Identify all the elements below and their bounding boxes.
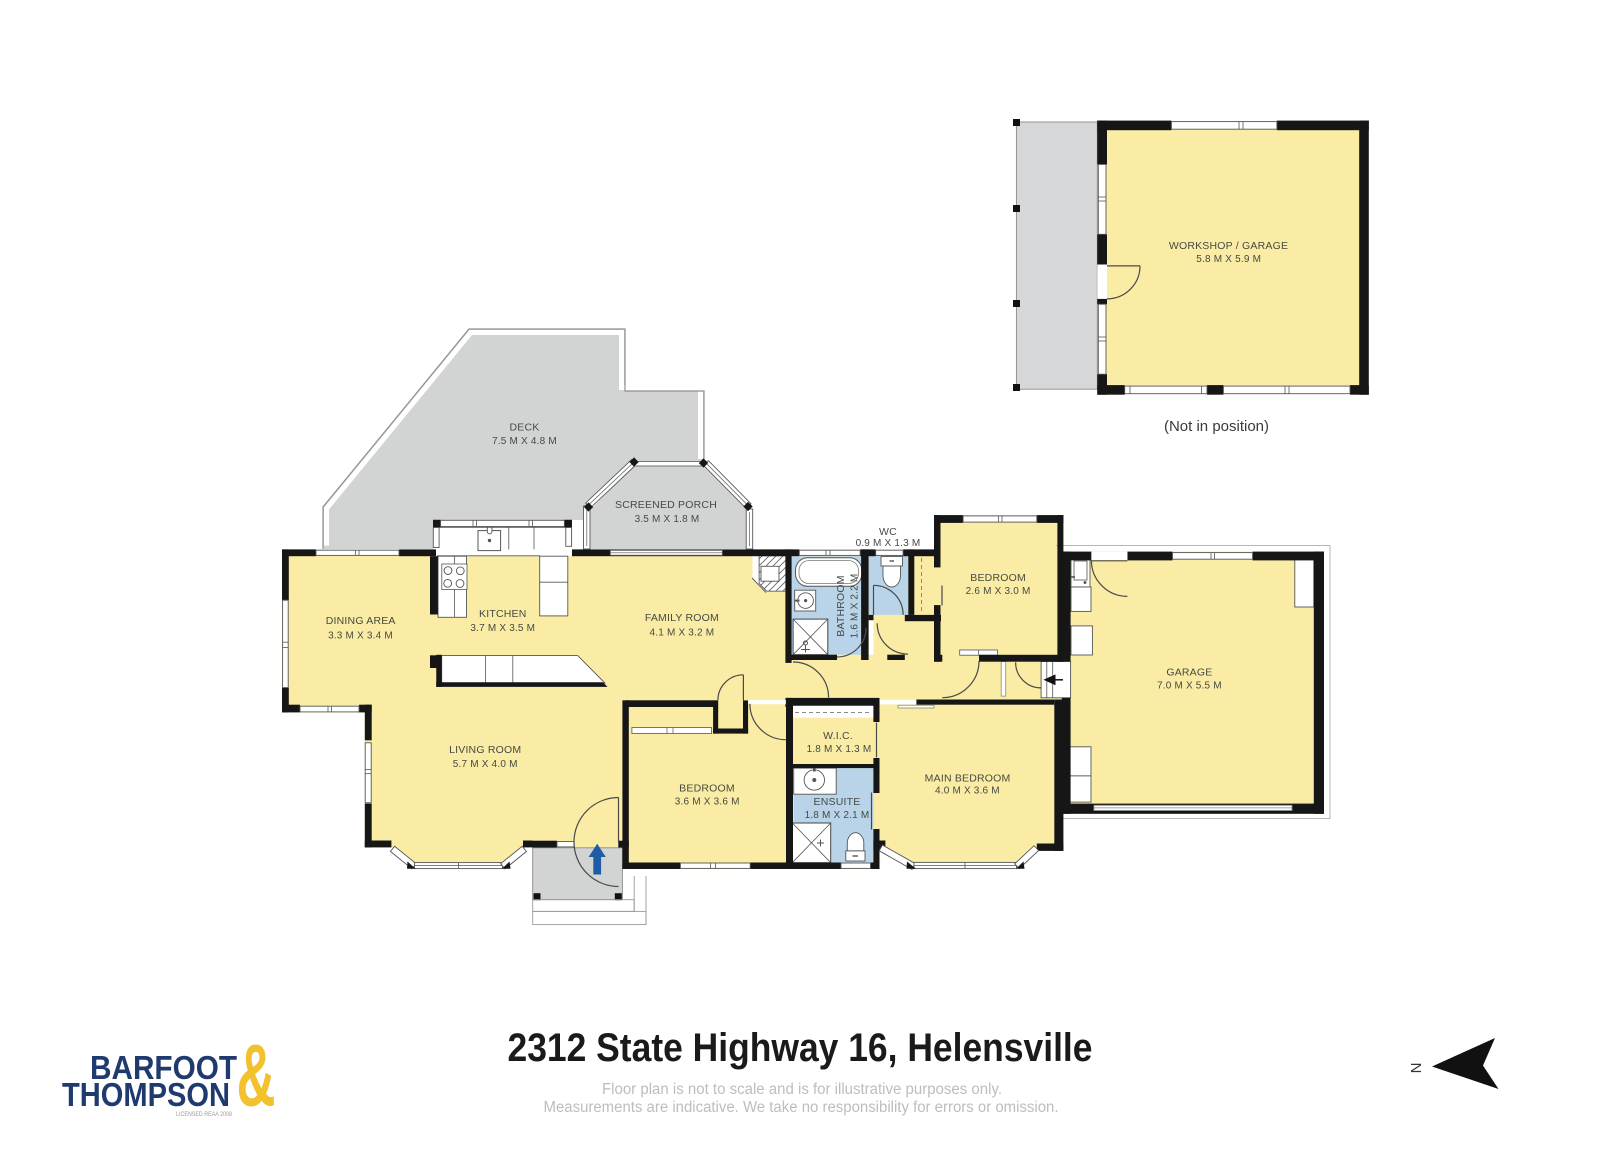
svg-text:3.5 M X 1.8 M: 3.5 M X 1.8 M: [635, 514, 700, 525]
svg-text:4.0 M X 3.6 M: 4.0 M X 3.6 M: [935, 786, 1000, 797]
svg-text:THOMPSON: THOMPSON: [62, 1076, 230, 1113]
svg-text:1.6 M X 2.2 M: 1.6 M X 2.2 M: [850, 574, 861, 639]
svg-text:3.6 M X 3.6 M: 3.6 M X 3.6 M: [675, 797, 740, 808]
svg-text:Floor plan is not to scale and: Floor plan is not to scale and is for il…: [602, 1081, 1002, 1098]
svg-text:BATHROOM: BATHROOM: [835, 575, 847, 637]
svg-text:FAMILY ROOM: FAMILY ROOM: [645, 612, 719, 624]
svg-text:7.0 M X 5.5 M: 7.0 M X 5.5 M: [1157, 680, 1222, 691]
svg-text:DECK: DECK: [510, 422, 540, 434]
svg-text:&: &: [237, 1027, 276, 1125]
svg-text:DINING AREA: DINING AREA: [326, 615, 396, 627]
svg-text:ENSUITE: ENSUITE: [814, 796, 861, 808]
svg-text:1.8 M X 1.3 M: 1.8 M X 1.3 M: [807, 744, 872, 755]
svg-text:1.8 M X 2.1 M: 1.8 M X 2.1 M: [805, 810, 870, 821]
svg-text:2.6 M X 3.0 M: 2.6 M X 3.0 M: [966, 586, 1031, 597]
svg-text:WORKSHOP / GARAGE: WORKSHOP / GARAGE: [1169, 240, 1288, 252]
svg-text:LIVING ROOM: LIVING ROOM: [449, 744, 521, 756]
svg-text:W.I.C.: W.I.C.: [823, 730, 853, 742]
svg-text:Measurements are indicative. W: Measurements are indicative. We take no …: [544, 1099, 1059, 1116]
svg-text:2312 State Highway 16, Helensv: 2312 State Highway 16, Helensville: [508, 1026, 1093, 1070]
svg-text:5.8 M X 5.9 M: 5.8 M X 5.9 M: [1196, 254, 1261, 265]
svg-text:3.3 M X 3.4 M: 3.3 M X 3.4 M: [328, 631, 393, 642]
svg-text:0.9 M X 1.3 M: 0.9 M X 1.3 M: [856, 538, 921, 549]
svg-text:(Not in position): (Not in position): [1164, 418, 1269, 435]
svg-text:WC: WC: [879, 526, 897, 538]
svg-text:4.1 M X 3.2 M: 4.1 M X 3.2 M: [649, 627, 714, 638]
svg-text:BEDROOM: BEDROOM: [679, 783, 735, 795]
svg-text:N: N: [1408, 1063, 1425, 1074]
svg-text:GARAGE: GARAGE: [1166, 667, 1212, 679]
svg-text:LICENSED REAA 2008: LICENSED REAA 2008: [176, 1112, 233, 1118]
svg-text:SCREENED PORCH: SCREENED PORCH: [615, 499, 717, 511]
svg-text:BEDROOM: BEDROOM: [970, 572, 1026, 584]
svg-text:7.5 M X 4.8 M: 7.5 M X 4.8 M: [492, 436, 557, 447]
svg-text:3.7 M X 3.5 M: 3.7 M X 3.5 M: [470, 623, 535, 634]
svg-text:KITCHEN: KITCHEN: [479, 608, 527, 620]
svg-text:MAIN BEDROOM: MAIN BEDROOM: [925, 773, 1011, 785]
svg-text:5.7 M X 4.0 M: 5.7 M X 4.0 M: [453, 759, 518, 770]
